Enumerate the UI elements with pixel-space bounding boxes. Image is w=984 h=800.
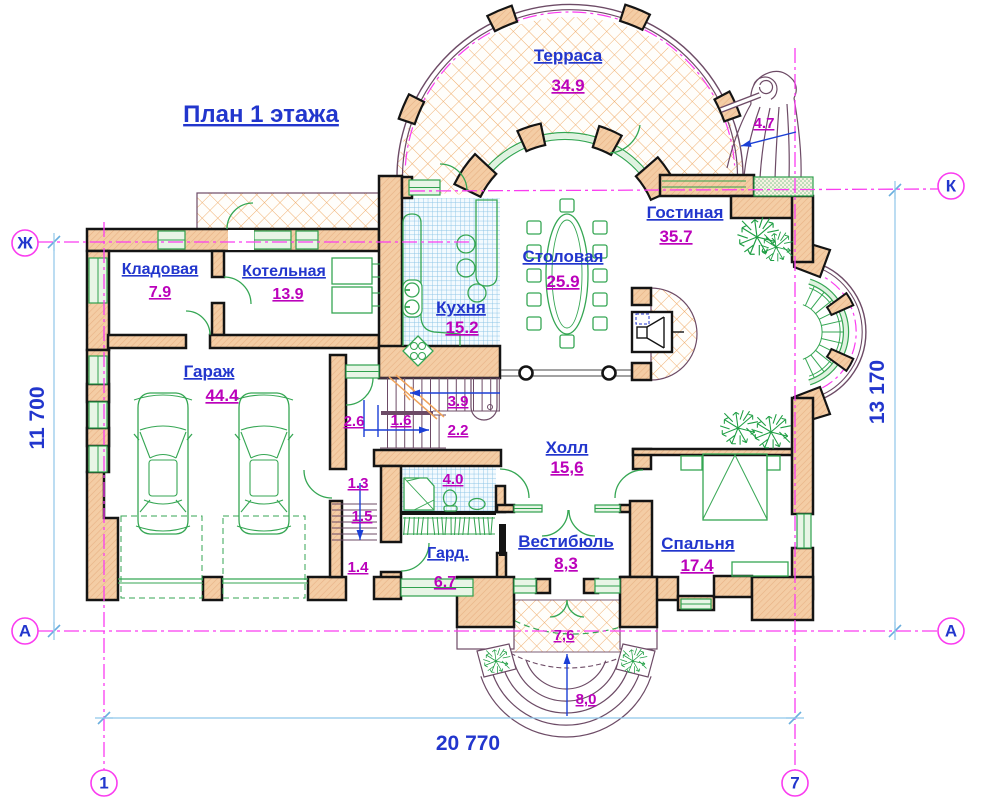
svg-text:А: А	[945, 622, 957, 641]
svg-text:34.9: 34.9	[551, 76, 584, 95]
svg-text:Холл: Холл	[546, 438, 589, 457]
svg-text:Спальня: Спальня	[661, 534, 734, 553]
svg-text:6.7: 6.7	[434, 574, 456, 591]
svg-text:20 770: 20 770	[436, 732, 500, 755]
svg-text:Гард.: Гард.	[427, 545, 469, 562]
svg-text:35.7: 35.7	[659, 227, 692, 246]
svg-text:1: 1	[99, 774, 108, 793]
svg-text:1.6: 1.6	[391, 412, 412, 429]
svg-text:11 700: 11 700	[26, 386, 49, 449]
svg-text:8,0: 8,0	[576, 691, 597, 708]
svg-text:К: К	[946, 177, 957, 196]
svg-text:1.4: 1.4	[348, 559, 370, 576]
svg-text:25.9: 25.9	[546, 272, 579, 291]
svg-text:Гостиная: Гостиная	[647, 203, 724, 222]
svg-text:1.5: 1.5	[352, 508, 373, 525]
svg-text:13 170: 13 170	[866, 360, 889, 424]
svg-text:15,6: 15,6	[550, 458, 583, 477]
svg-text:7.9: 7.9	[149, 284, 171, 301]
svg-text:Столовая: Столовая	[523, 247, 604, 266]
svg-text:4.0: 4.0	[443, 471, 464, 488]
svg-text:3.9: 3.9	[448, 393, 469, 410]
svg-text:7: 7	[790, 774, 799, 793]
svg-text:2.2: 2.2	[448, 422, 469, 439]
svg-text:План 1 этажа: План 1 этажа	[183, 101, 339, 128]
svg-text:4.7: 4.7	[754, 115, 775, 132]
svg-text:2.6: 2.6	[344, 413, 365, 430]
svg-text:17.4: 17.4	[680, 556, 714, 575]
svg-text:15.2: 15.2	[445, 318, 478, 337]
svg-text:Кухня: Кухня	[436, 298, 486, 317]
svg-text:Вестибюль: Вестибюль	[518, 532, 614, 551]
svg-text:7,6: 7,6	[554, 627, 575, 644]
svg-text:Ж: Ж	[16, 234, 33, 253]
svg-text:А: А	[19, 622, 31, 641]
svg-text:13.9: 13.9	[272, 286, 303, 303]
svg-text:Котельная: Котельная	[242, 263, 326, 280]
svg-text:8,3: 8,3	[554, 554, 578, 573]
svg-text:44.4: 44.4	[205, 386, 239, 405]
svg-text:1.3: 1.3	[348, 475, 369, 492]
svg-text:Гараж: Гараж	[184, 362, 236, 381]
svg-text:Терраса: Терраса	[534, 46, 603, 65]
svg-text:Кладовая: Кладовая	[122, 261, 199, 278]
